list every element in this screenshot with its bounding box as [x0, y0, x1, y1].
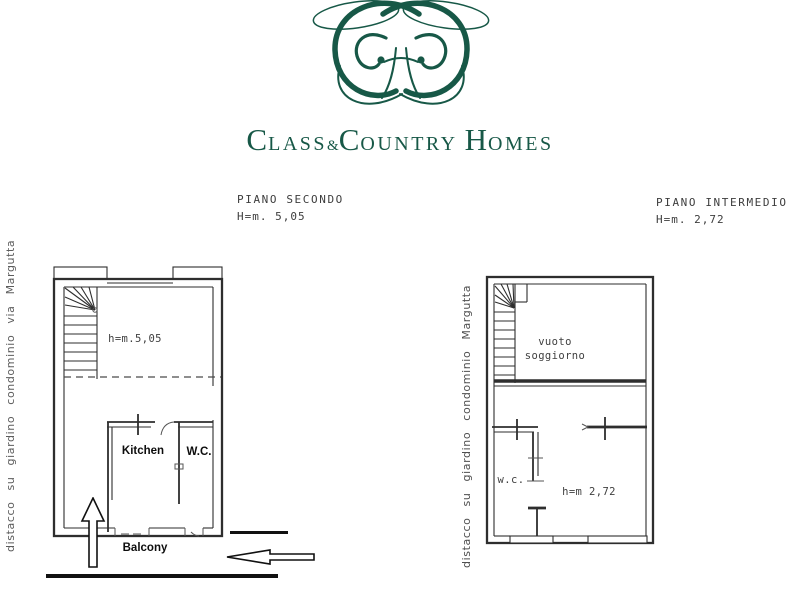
vuoto-label: vuoto	[538, 336, 572, 348]
wordmark-c2: C	[339, 122, 361, 157]
wordmark-amp: &	[327, 138, 339, 154]
wc-label: W.C.	[187, 446, 212, 458]
wordmark-omes: OMES	[488, 133, 554, 155]
wordmark-c1: C	[246, 122, 268, 157]
right-room-height-label: h=m 2,72	[562, 486, 616, 498]
right-floorplan-drawing: vuoto soggiorno w.c. h=m 2,72	[470, 262, 665, 562]
left-plan-side-label: distacco su giardino condominio via Marg…	[4, 240, 17, 552]
soggiorno-label: soggiorno	[525, 350, 586, 362]
up-arrow-icon	[80, 497, 106, 569]
scale-line-long	[46, 574, 278, 578]
right-plan-height-note: H=m. 2,72	[656, 214, 788, 225]
scale-line-short	[230, 531, 288, 534]
kitchen-walls	[107, 414, 155, 532]
kitchen-label: Kitchen	[122, 445, 164, 457]
left-staircase	[64, 287, 97, 379]
right-wc-label: w.c.	[498, 474, 525, 486]
left-floorplan-drawing: h=m.5,05 Kitchen W.C. Balcony	[45, 258, 235, 558]
right-plan-title-block: PIANO INTERMEDIO H=m. 2,72	[656, 197, 788, 225]
wordmark-ountry: OUNTRY	[360, 133, 457, 155]
left-room-height-label: h=m.5,05	[108, 333, 162, 345]
right-plan-title: PIANO INTERMEDIO	[656, 197, 788, 208]
wordmark-lass: LASS	[268, 133, 327, 155]
wordmark-h: H	[465, 122, 488, 157]
left-plan-title-block: PIANO SECONDO H=m. 5,05	[237, 194, 344, 222]
brand-monogram-icon	[306, 0, 496, 120]
scanned-floorplan-page: CLASS&COUNTRYHOMES PIANO SECONDO H=m. 5,…	[0, 0, 800, 600]
brand-wordmark: CLASS&COUNTRYHOMES	[0, 122, 800, 158]
left-plan-title: PIANO SECONDO	[237, 194, 344, 205]
left-plan-height-note: H=m. 5,05	[237, 211, 344, 222]
wc-walls	[161, 422, 213, 504]
right-staircase	[494, 284, 527, 383]
left-arrow-icon	[226, 549, 316, 565]
balcony-label: Balcony	[123, 542, 168, 554]
